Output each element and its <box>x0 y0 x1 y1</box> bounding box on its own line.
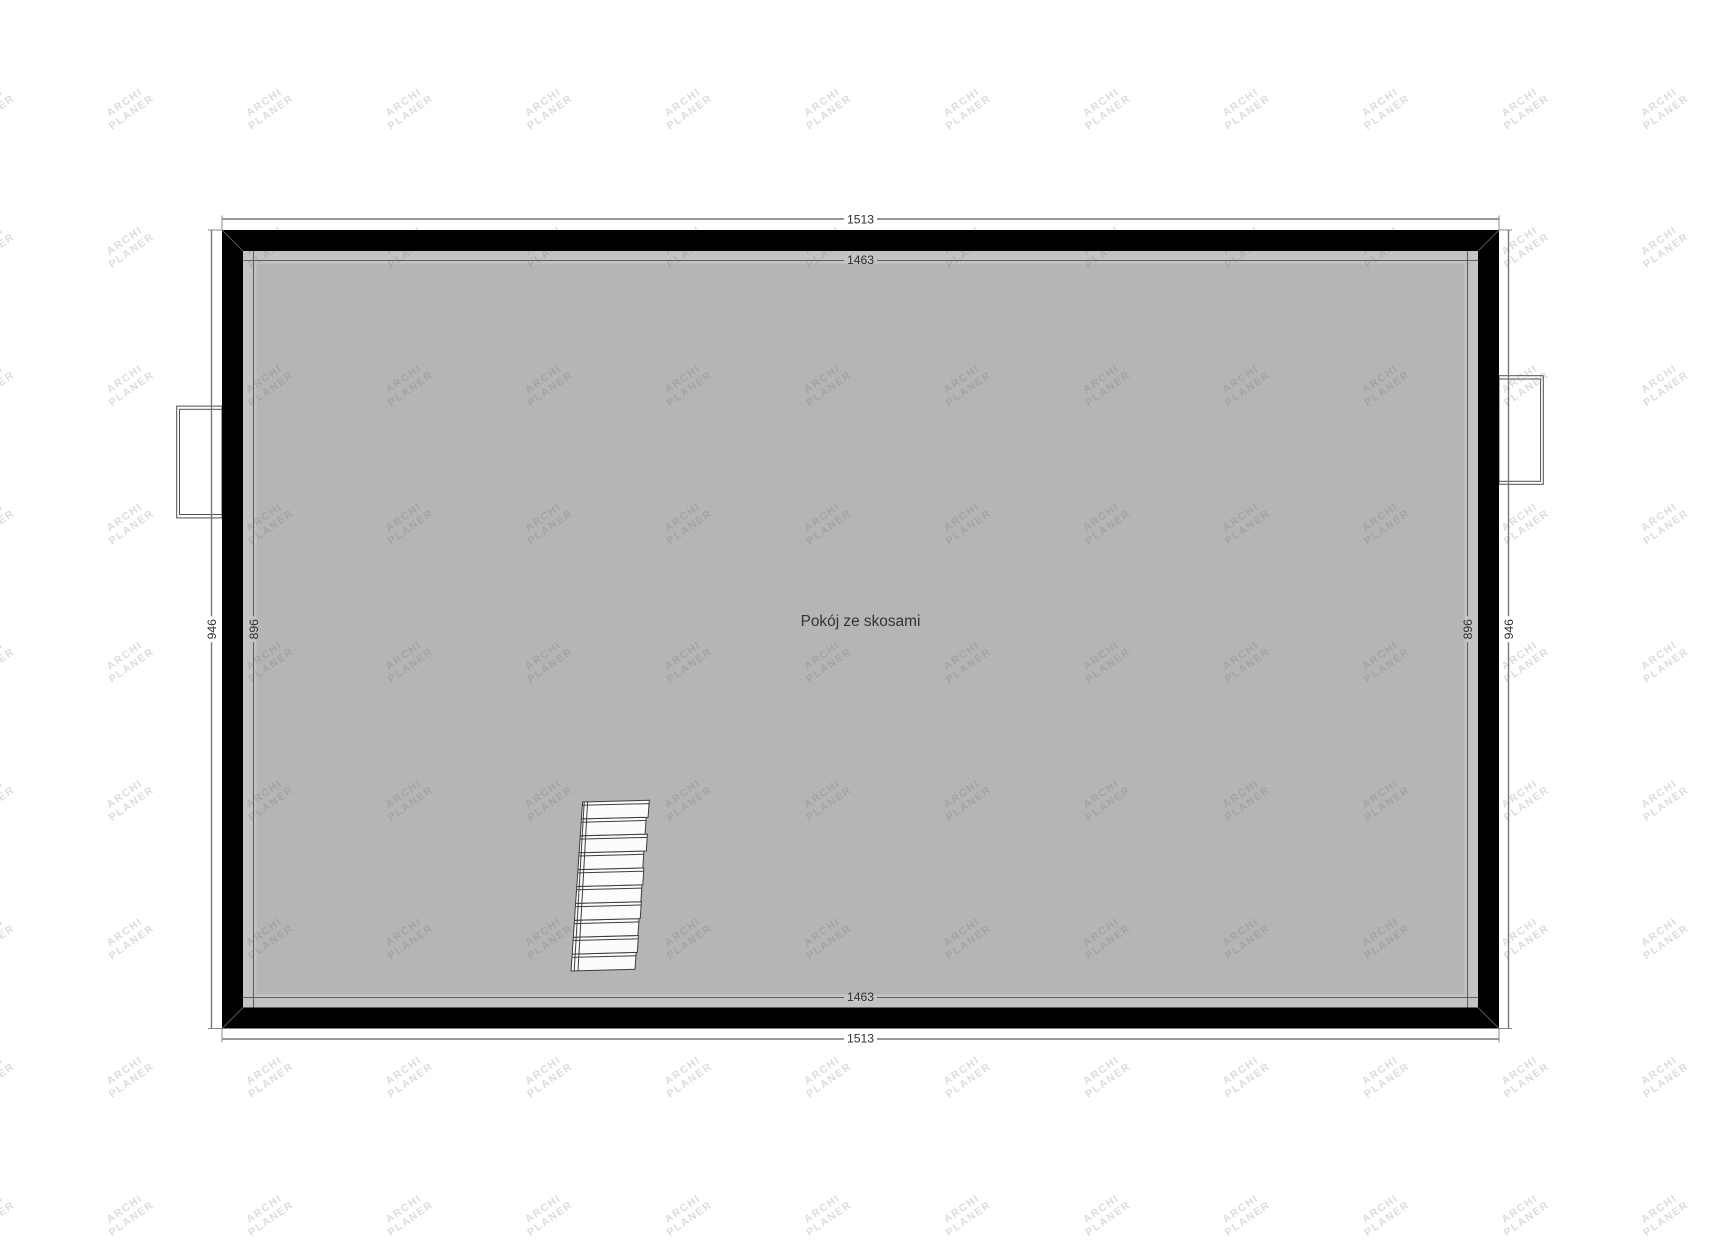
svg-text:PLANER: PLANER <box>0 369 17 409</box>
svg-text:896: 896 <box>1461 619 1475 640</box>
svg-text:1513: 1513 <box>847 1032 874 1046</box>
svg-text:PLANER: PLANER <box>0 784 17 824</box>
svg-text:PLANER: PLANER <box>0 92 17 132</box>
svg-text:Pokój ze skosami: Pokój ze skosami <box>801 613 921 630</box>
svg-text:1463: 1463 <box>847 990 874 1004</box>
svg-text:PLANER: PLANER <box>0 645 17 685</box>
svg-text:PLANER: PLANER <box>0 922 17 962</box>
svg-text:946: 946 <box>205 619 219 640</box>
svg-text:1513: 1513 <box>847 213 874 227</box>
svg-text:1463: 1463 <box>847 253 874 267</box>
svg-text:PLANER: PLANER <box>0 1199 17 1239</box>
svg-text:946: 946 <box>1502 619 1516 640</box>
svg-text:PLANER: PLANER <box>0 507 17 547</box>
svg-text:PLANER: PLANER <box>0 231 17 271</box>
svg-text:896: 896 <box>247 619 261 640</box>
svg-text:PLANER: PLANER <box>0 1060 17 1100</box>
